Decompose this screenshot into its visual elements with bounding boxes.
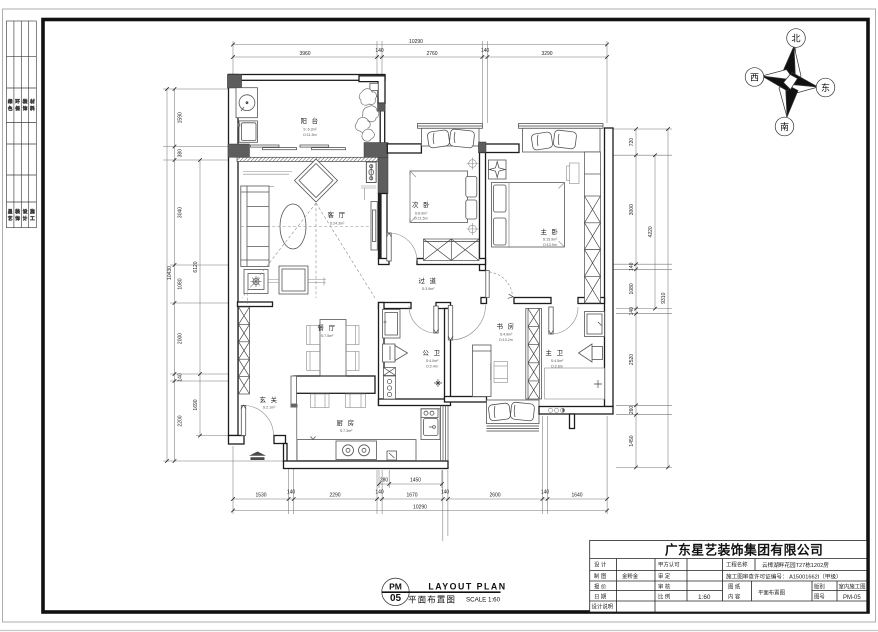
svg-text:3040: 3040 [178,207,184,218]
svg-text:140: 140 [541,490,550,496]
svg-text:280: 280 [380,478,389,484]
svg-text:3000: 3000 [629,204,635,215]
svg-text:绿: 绿 [8,98,13,104]
svg-text:2000: 2000 [178,333,184,344]
svg-text:10290: 10290 [409,39,423,45]
svg-text:星: 星 [8,209,13,214]
svg-text:日 期: 日 期 [594,594,606,601]
svg-text:S:15.9m²: S:15.9m² [543,238,558,242]
svg-text:设 计: 设 计 [594,561,607,569]
svg-text:140: 140 [287,490,296,496]
svg-text:1450: 1450 [410,478,421,484]
svg-text:1640: 1640 [571,493,582,499]
svg-text:西: 西 [750,73,759,83]
svg-text:3960: 3960 [299,51,310,57]
svg-text:D:2.8m: D:2.8m [551,365,563,369]
svg-text:阳 台: 阳 台 [300,116,319,125]
svg-text:260: 260 [629,406,635,415]
svg-text:设: 设 [23,208,28,215]
svg-text:材: 材 [30,98,35,104]
svg-text:10430: 10430 [167,266,173,280]
svg-text:9310: 9310 [661,292,667,303]
svg-text:LAYOUT PLAN: LAYOUT PLAN [428,582,506,592]
svg-text:东: 东 [821,82,830,93]
svg-text:次 卧: 次 卧 [412,200,431,209]
svg-text:720: 720 [629,138,635,147]
svg-text:S:7.3m²: S:7.3m² [340,429,353,433]
svg-text:南: 南 [780,121,789,132]
svg-text:PM-05: PM-05 [843,595,861,601]
svg-text:甲方认可: 甲方认可 [658,561,680,569]
svg-text:PM: PM [389,582,402,592]
svg-text:D:11.5m: D:11.5m [303,133,316,137]
svg-text:公 卫: 公 卫 [422,349,441,357]
svg-text:设计说明: 设计说明 [592,603,614,611]
svg-text:2600: 2600 [489,493,500,499]
svg-text:1530: 1530 [255,493,266,499]
svg-text:140: 140 [375,490,384,496]
svg-text:计: 计 [23,215,28,222]
svg-text:S:7.5m²: S:7.5m² [321,334,334,338]
svg-text:平面布置图: 平面布置图 [408,594,456,605]
svg-text:140: 140 [441,490,450,496]
svg-text:1670: 1670 [406,493,417,499]
svg-text:施工图审查许可证编号： A15001662I（甲级）: 施工图审查许可证编号： A15001662I（甲级） [726,573,842,581]
svg-text:平面布置图: 平面布置图 [758,589,785,597]
svg-text:S:3.9m²: S:3.9m² [422,287,435,291]
svg-text:主 卫: 主 卫 [545,348,564,357]
svg-text:6120: 6120 [193,261,199,272]
svg-text:SCALE 1:60: SCALE 1:60 [466,597,501,604]
svg-text:05: 05 [390,593,402,604]
svg-text:S: 6.3m²: S: 6.3m² [303,128,317,132]
svg-text:饰: 饰 [15,215,20,222]
svg-text:工: 工 [30,216,35,221]
svg-text:S:8.9m²: S:8.9m² [415,212,428,216]
svg-text:140: 140 [375,48,384,54]
svg-text:2760: 2760 [426,51,437,57]
svg-text:餐 厅: 餐 厅 [317,323,336,332]
svg-text:2290: 2290 [329,493,340,499]
svg-text:1590: 1590 [178,112,184,123]
svg-text:色: 色 [8,105,13,111]
svg-text:内 容: 内 容 [728,593,741,601]
svg-text:D:10.2m: D:10.2m [499,338,513,342]
svg-text:比 例: 比 例 [658,593,670,601]
svg-text:D:11.5m: D:11.5m [414,217,427,221]
svg-text:2520: 2520 [629,354,635,365]
svg-text:厨 房: 厨 房 [336,418,355,427]
svg-text:D:2.4m: D:2.4m [426,365,438,369]
svg-text:制 图: 制 图 [594,572,606,580]
svg-text:1690: 1690 [193,399,199,410]
svg-text:1:60: 1:60 [698,594,711,601]
svg-text:2200: 2200 [178,415,184,426]
svg-text:客 厅: 客 厅 [327,210,346,219]
svg-text:料: 料 [30,105,35,112]
svg-text:饰: 饰 [23,105,28,112]
svg-text:报 价: 报 价 [594,583,607,591]
svg-text:装: 装 [23,98,28,105]
svg-text:S:2.1m²: S:2.1m² [263,406,276,410]
svg-text:艺: 艺 [8,216,13,221]
svg-text:4220: 4220 [648,226,654,237]
svg-text:图 纸: 图 纸 [728,583,741,591]
svg-text:版别: 版别 [814,583,825,591]
svg-text:保: 保 [15,105,20,112]
svg-text:北: 北 [791,34,800,44]
svg-text:S:24.3m²: S:24.3m² [330,222,345,226]
svg-text:S:4.5m²: S:4.5m² [551,359,564,363]
svg-text:过 道: 过 道 [418,276,437,285]
svg-text:施: 施 [30,208,35,215]
svg-text:S:4.0m²: S:4.0m² [426,359,439,363]
svg-text:审 定: 审 定 [658,572,671,580]
svg-text:1450: 1450 [629,435,635,446]
svg-text:S:4.9m²: S:4.9m² [500,333,513,337]
svg-text:装: 装 [15,208,20,215]
svg-text:1080: 1080 [178,278,184,289]
svg-text:室内施工图: 室内施工图 [839,583,866,591]
svg-text:金粉金: 金粉金 [622,572,639,580]
svg-text:10290: 10290 [413,504,427,510]
svg-text:380: 380 [178,149,184,158]
svg-text:140: 140 [629,262,635,271]
svg-text:140: 140 [178,373,184,382]
svg-text:3290: 3290 [541,51,552,57]
svg-text:图号: 图号 [814,593,825,601]
svg-text:书 房: 书 房 [496,322,515,331]
svg-text:广东星艺装饰集团有限公司: 广东星艺装饰集团有限公司 [665,543,823,558]
svg-text:工程名称: 工程名称 [726,561,748,569]
svg-text:140: 140 [629,307,635,316]
svg-text:1080: 1080 [629,283,635,294]
svg-text:主 卧: 主 卧 [540,227,559,236]
svg-text:云樟湖畔花园T27栋1202房: 云樟湖畔花园T27栋1202房 [762,561,829,569]
svg-text:玄 关: 玄 关 [259,395,278,404]
svg-text:140: 140 [481,48,490,54]
svg-text:审 核: 审 核 [658,583,671,591]
svg-text:D:13.9m: D:13.9m [543,243,557,247]
